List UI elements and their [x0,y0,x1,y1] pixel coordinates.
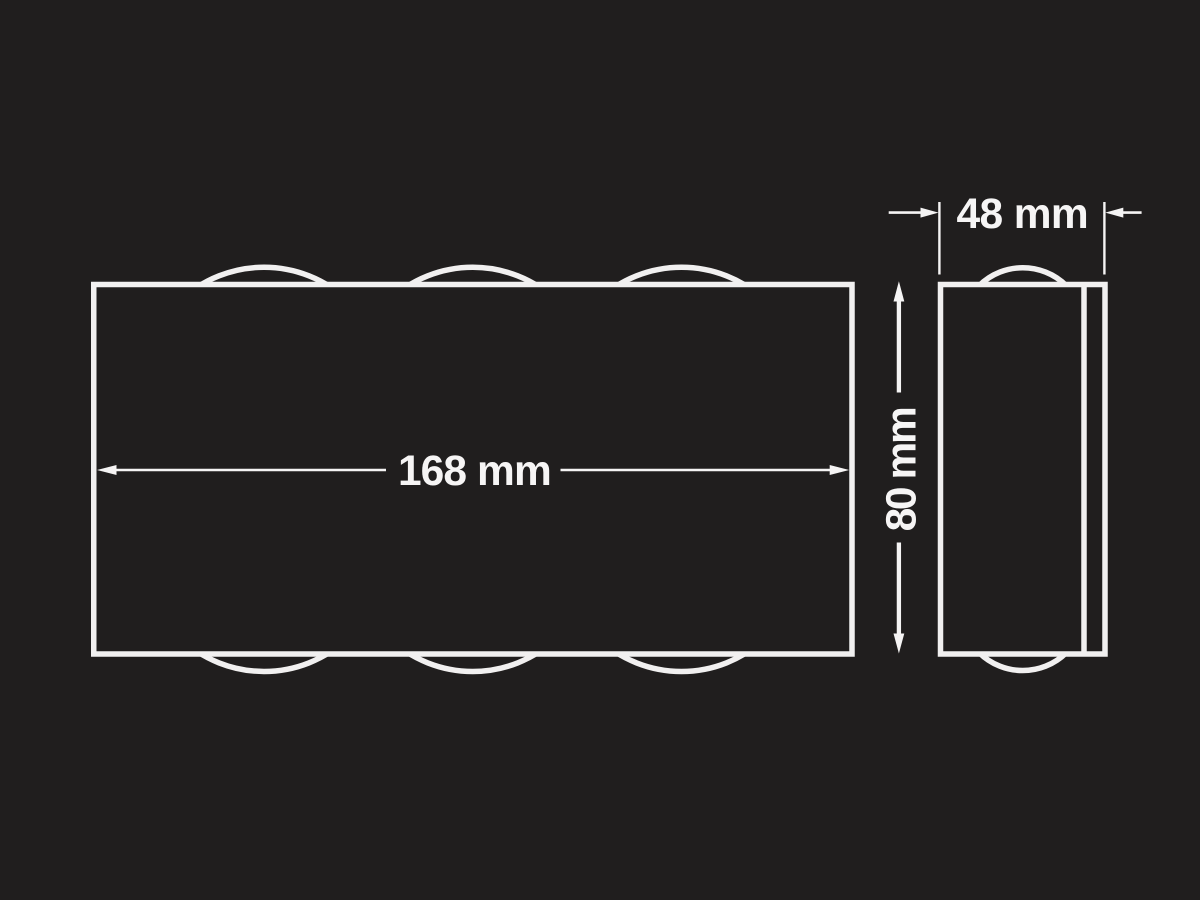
svg-text:48 mm: 48 mm [956,191,1088,238]
svg-text:168 mm: 168 mm [398,448,551,495]
svg-text:80 mm: 80 mm [878,408,925,531]
